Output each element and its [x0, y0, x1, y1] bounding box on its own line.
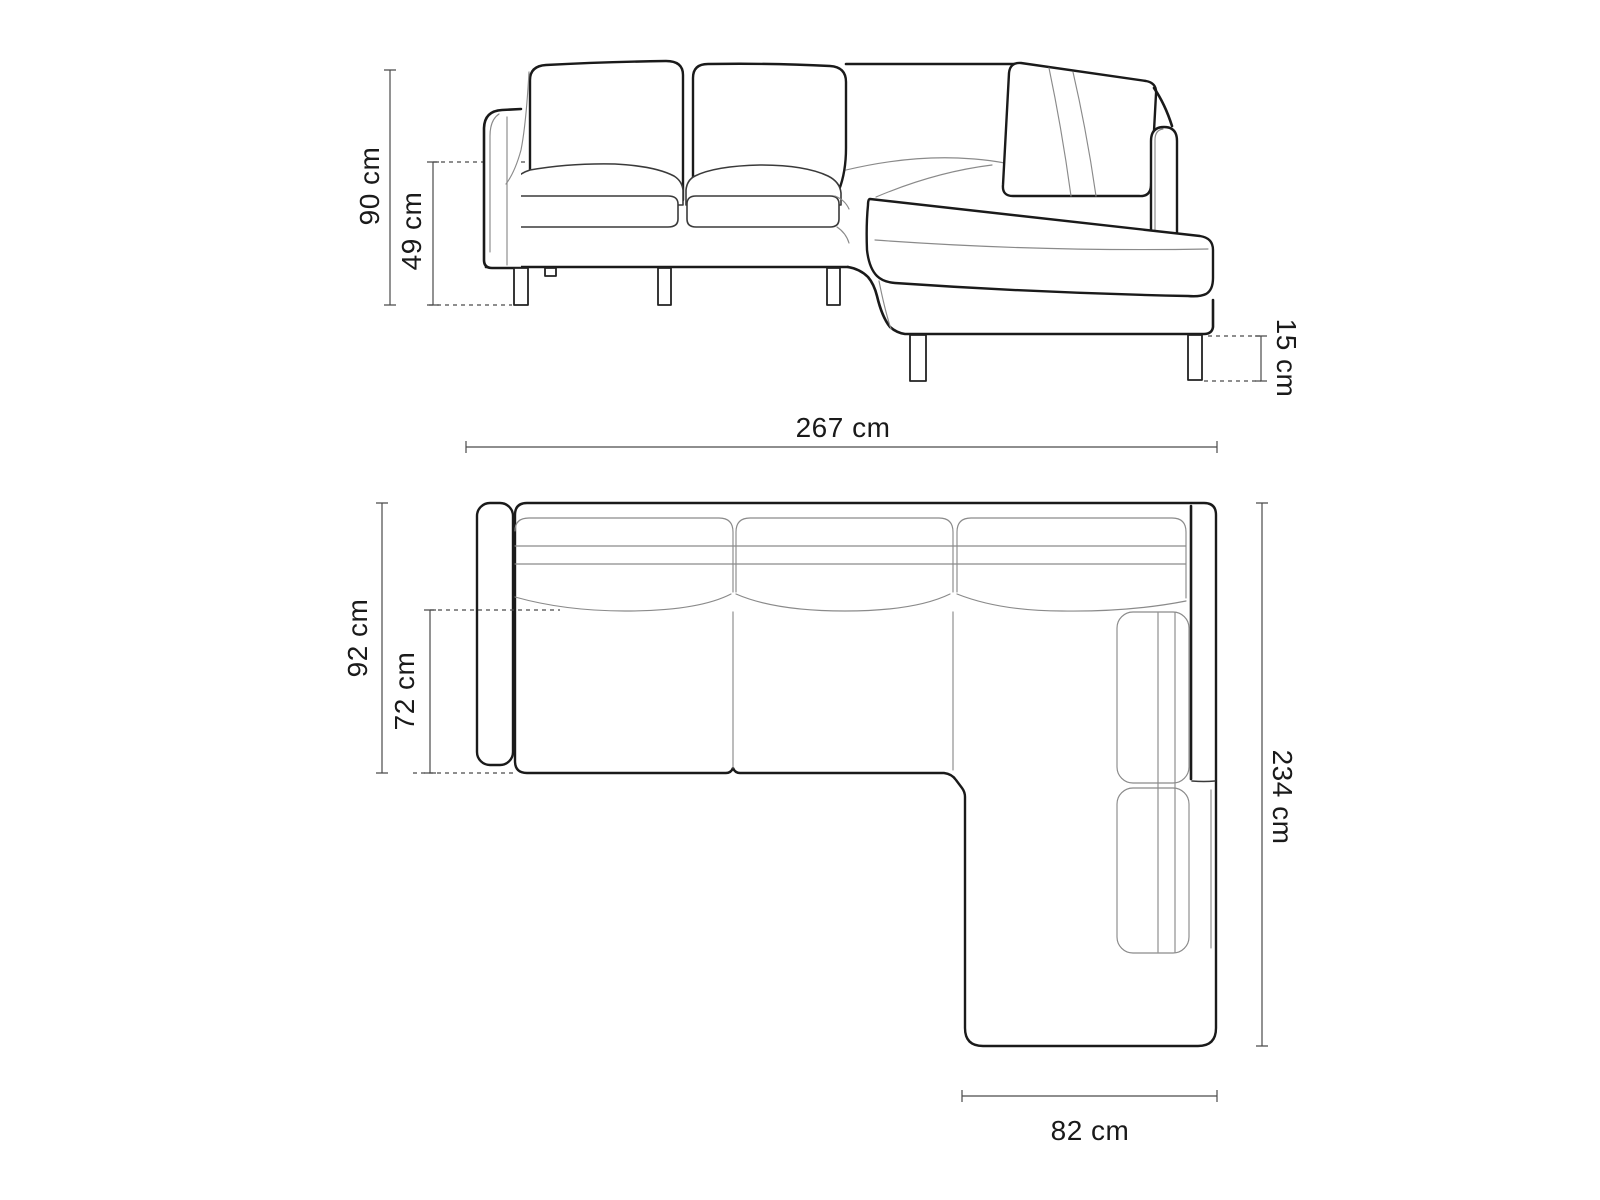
plan-outline	[515, 503, 1216, 1046]
dim-overall-height: 90 cm	[354, 70, 396, 305]
dim-chaise-width: 82 cm	[962, 1090, 1217, 1146]
dim-overall-height-label: 90 cm	[354, 147, 385, 226]
plan-left-arm	[477, 503, 513, 765]
chaise-back-edge	[876, 165, 992, 197]
right-arm	[1151, 127, 1177, 238]
front-elevation-view: 90 cm 49 cm	[354, 61, 1302, 397]
dim-leg-height-label: 15 cm	[1271, 319, 1302, 398]
back-right-silhouette	[1154, 88, 1172, 126]
base-band	[485, 228, 847, 267]
dim-overall-width-label: 267 cm	[796, 412, 891, 443]
dim-seat-depth-label: 72 cm	[389, 652, 420, 731]
dim-right-side-length-label: 234 cm	[1267, 750, 1298, 845]
dim-overall-width: 267 cm	[466, 412, 1217, 453]
sofa-plan	[477, 503, 1216, 1046]
dim-chaise-width-label: 82 cm	[1051, 1115, 1130, 1146]
sofa-dimension-drawing: 90 cm 49 cm	[0, 0, 1600, 1200]
drawing-canvas: 90 cm 49 cm	[0, 0, 1600, 1200]
top-plan-view: 267 cm	[342, 412, 1298, 1146]
dim-seat-height-label: 49 cm	[396, 192, 427, 271]
sofa-elevation	[484, 61, 1213, 381]
corner-back-pillow	[1003, 63, 1156, 196]
dim-overall-depth: 92 cm	[342, 503, 388, 773]
dim-right-side-length: 234 cm	[1256, 503, 1298, 1046]
sofa-legs	[514, 268, 840, 305]
dim-overall-depth-label: 92 cm	[342, 599, 373, 678]
dim-leg-height: 15 cm	[1204, 319, 1302, 398]
